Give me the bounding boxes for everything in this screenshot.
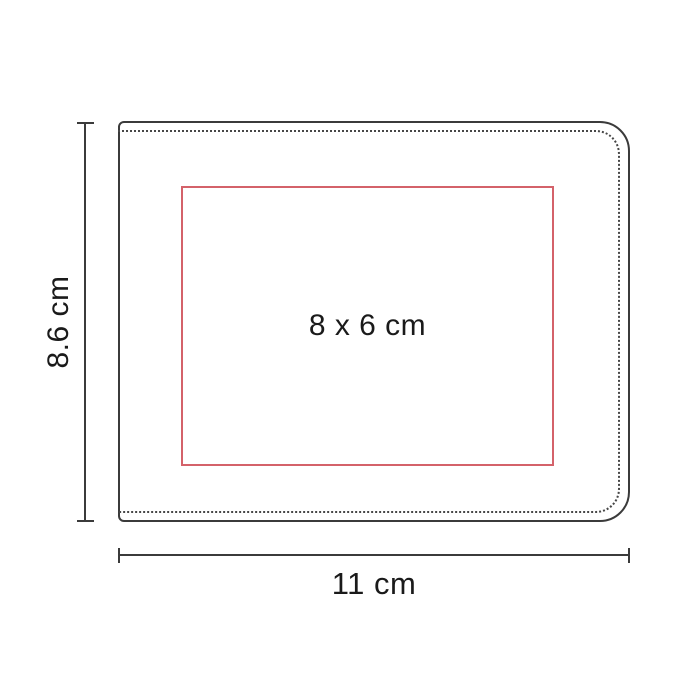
print-area-label: 8 x 6 cm — [309, 309, 426, 343]
height-dimension-label: 8.6 cm — [42, 247, 76, 397]
height-dimension-cap-bottom — [77, 520, 94, 522]
print-area-box: 8 x 6 cm — [181, 186, 554, 466]
width-dimension-line — [118, 554, 630, 556]
product-dimension-diagram: 8 x 6 cm 8.6 cm 11 cm — [0, 0, 700, 700]
width-dimension-label: 11 cm — [118, 566, 630, 602]
height-dimension — [77, 122, 94, 522]
width-dimension-cap-right — [628, 548, 630, 563]
height-dimension-cap-top — [77, 122, 94, 124]
wallet-outline: 8 x 6 cm — [118, 121, 630, 522]
width-dimension — [118, 548, 630, 563]
width-dimension-cap-left — [118, 548, 120, 563]
height-dimension-line — [84, 122, 86, 522]
